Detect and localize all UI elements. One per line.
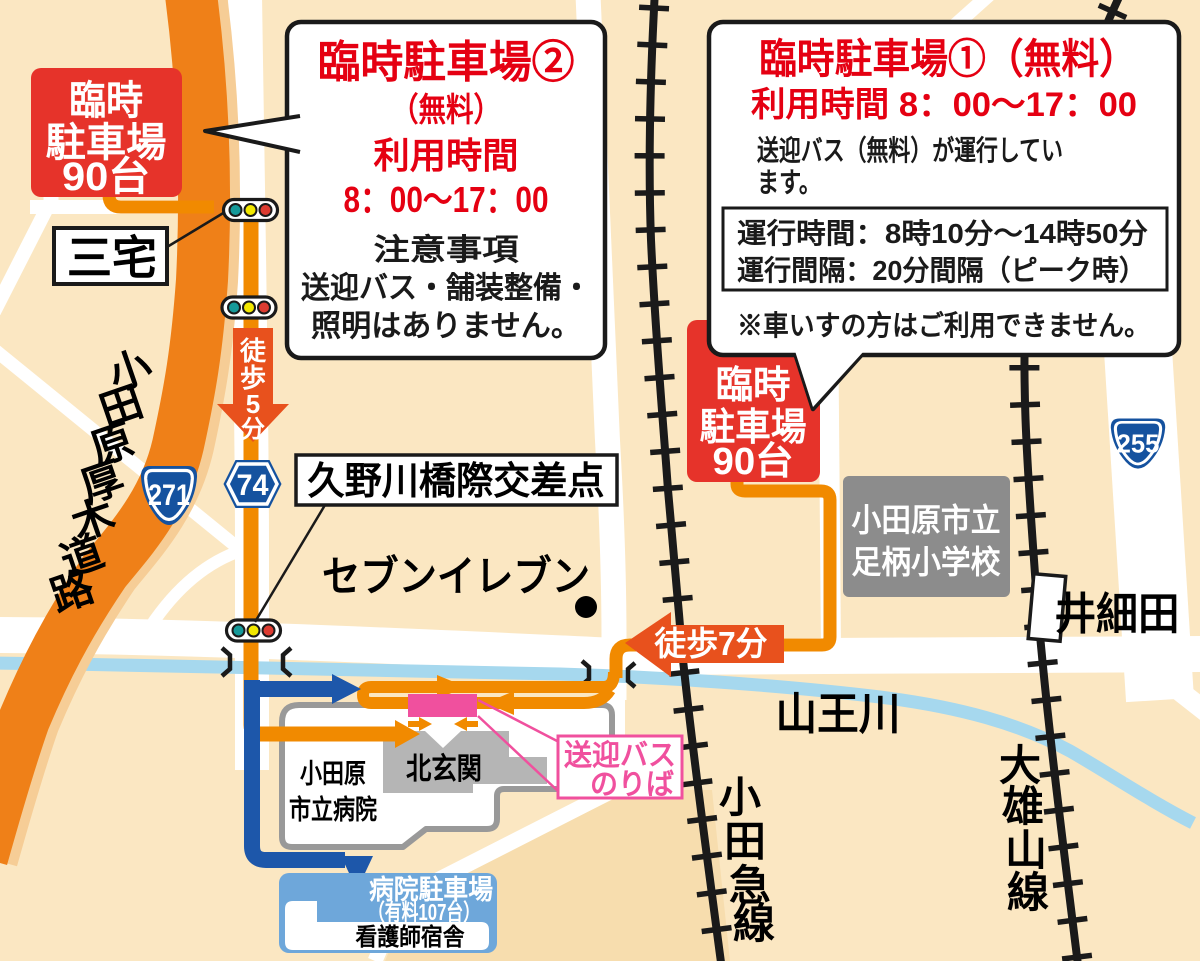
svg-text:74: 74 [237, 469, 269, 502]
svg-text:三宅: 三宅 [67, 232, 157, 284]
svg-text:照明はありません。: 照明はありません。 [311, 310, 581, 343]
svg-text:小田原: 小田原 [300, 759, 366, 789]
svg-text:山: 山 [1005, 827, 1047, 874]
svg-text:5: 5 [246, 389, 260, 419]
svg-text:小田原市立: 小田原市立 [852, 502, 1001, 538]
svg-text:※車いすの方はご利用できません。: ※車いすの方はご利用できません。 [737, 309, 1150, 341]
svg-text:北玄関: 北玄関 [406, 752, 482, 786]
svg-text:久野川橋際交差点: 久野川橋際交差点 [308, 460, 605, 503]
svg-text:注意事項: 注意事項 [374, 233, 520, 267]
svg-text:271: 271 [148, 479, 190, 512]
svg-text:利用時間: 利用時間 [374, 135, 519, 176]
svg-text:小: 小 [719, 774, 761, 821]
svg-text:徒: 徒 [239, 336, 267, 366]
svg-text:臨時駐車場②: 臨時駐車場② [318, 38, 575, 87]
svg-text:（有料107台）: （有料107台） [368, 899, 480, 925]
svg-text:看護師宿舎: 看護師宿舎 [356, 923, 466, 951]
svg-text:徒歩7分: 徒歩7分 [654, 625, 768, 662]
svg-text:井細田: 井細田 [1055, 590, 1180, 639]
svg-text:分: 分 [241, 416, 265, 443]
svg-text:臨時駐車場①（無料）: 臨時駐車場①（無料） [759, 36, 1137, 82]
svg-text:送迎バス（無料）が運行してい: 送迎バス（無料）が運行してい [757, 134, 1063, 166]
svg-text:セブンイレブン: セブンイレブン [322, 553, 590, 600]
svg-text:雄: 雄 [1002, 783, 1044, 830]
svg-text:ます。: ます。 [757, 167, 821, 198]
svg-text:送迎バス: 送迎バス [564, 739, 676, 772]
svg-text:大: 大 [999, 742, 1041, 789]
svg-text:90台: 90台 [713, 441, 794, 483]
svg-text:線: 線 [1007, 869, 1049, 916]
svg-text:255: 255 [1117, 428, 1160, 458]
svg-text:送迎バス・舗装整備・: 送迎バス・舗装整備・ [301, 272, 591, 305]
svg-text:市立病院: 市立病院 [289, 794, 377, 825]
svg-text:運行時間：8時10分〜14時50分: 運行時間：8時10分〜14時50分 [737, 217, 1148, 249]
svg-text:臨時: 臨時 [69, 79, 143, 123]
svg-text:足柄小学校: 足柄小学校 [852, 544, 1001, 580]
svg-text:（無料）: （無料） [391, 91, 501, 128]
svg-text:臨時: 臨時 [716, 365, 791, 407]
svg-text:のりば: のりば [590, 768, 674, 801]
svg-text:利用時間 8：00〜17：00: 利用時間 8：00〜17：00 [751, 86, 1137, 124]
svg-text:山王川: 山王川 [776, 690, 901, 739]
svg-text:線: 線 [733, 900, 775, 947]
svg-text:運行間隔：20分間隔（ピーク時）: 運行間隔：20分間隔（ピーク時） [737, 254, 1146, 286]
svg-text:90台: 90台 [62, 155, 150, 199]
svg-text:田: 田 [724, 818, 766, 865]
svg-text:8：00〜17：00: 8：00〜17：00 [344, 179, 549, 220]
